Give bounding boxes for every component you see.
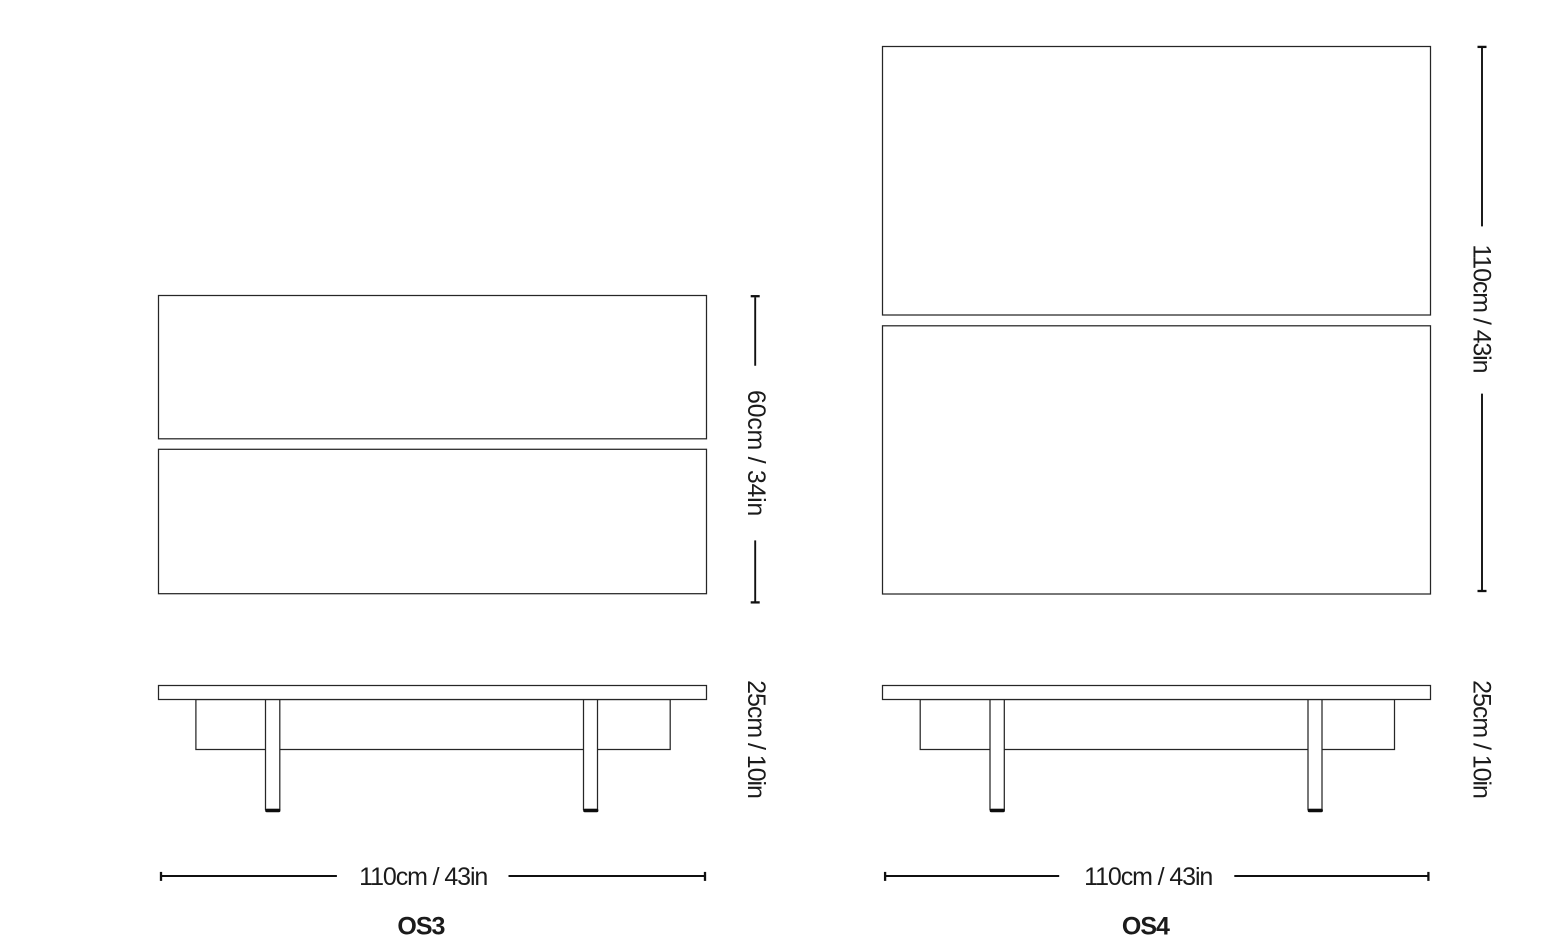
svg-text:110cm / 43in: 110cm / 43in bbox=[359, 863, 487, 891]
svg-text:OS3: OS3 bbox=[397, 913, 444, 941]
svg-text:110cm / 43in: 110cm / 43in bbox=[1468, 244, 1496, 372]
svg-text:110cm / 43in: 110cm / 43in bbox=[1084, 863, 1212, 891]
svg-text:60cm / 34in: 60cm / 34in bbox=[742, 390, 770, 516]
svg-text:OS4: OS4 bbox=[1122, 913, 1170, 941]
svg-text:25cm / 10in: 25cm / 10in bbox=[1468, 680, 1496, 798]
svg-text:25cm / 10in: 25cm / 10in bbox=[742, 680, 770, 798]
